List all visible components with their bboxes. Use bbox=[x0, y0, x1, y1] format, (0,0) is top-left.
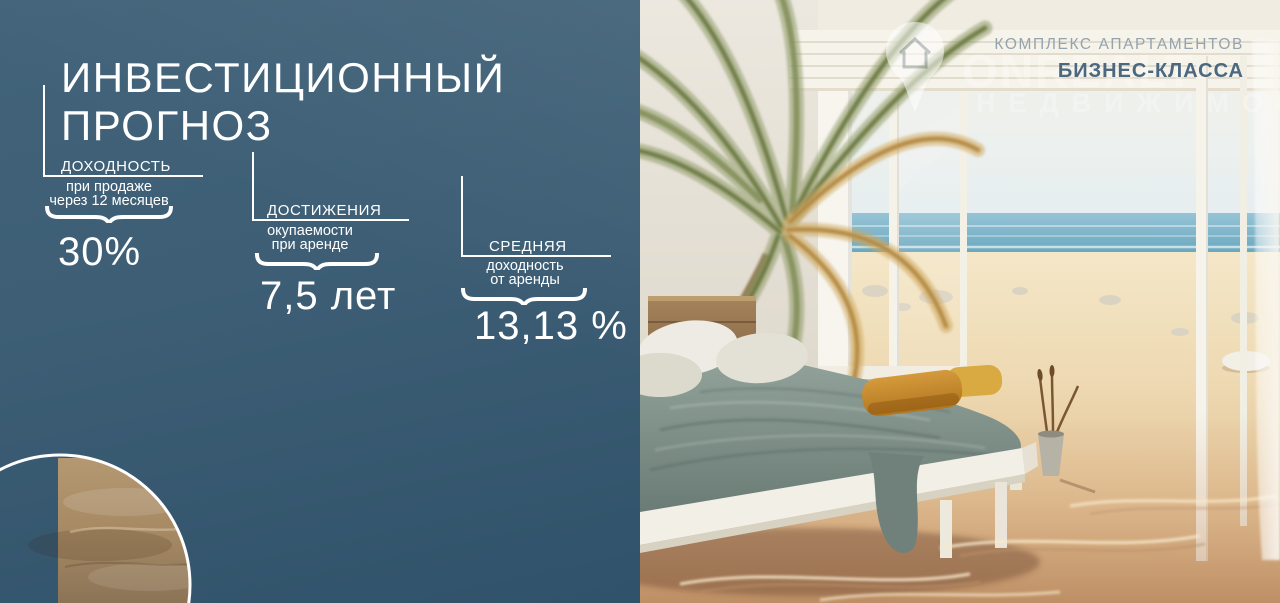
metric3-value: 13,13 % bbox=[474, 304, 628, 349]
underbrace-icon bbox=[460, 288, 588, 305]
complex-type: КОМПЛЕКС АПАРТАМЕНТОВ bbox=[994, 36, 1244, 54]
house-pin-icon bbox=[883, 20, 947, 114]
metric3-sub2: от аренды bbox=[455, 273, 595, 287]
title-line-2: ПРОГНОЗ bbox=[61, 102, 505, 150]
title-line-1: ИНВЕСТИЦИОННЫЙ bbox=[61, 54, 505, 102]
metric3-bracket-hline bbox=[461, 255, 611, 257]
metric1-bracket-hline bbox=[43, 175, 203, 177]
watermark-subtitle: НЕДВИЖИМОСТЬ bbox=[976, 88, 1280, 119]
bed-leg bbox=[940, 500, 952, 558]
metric3-bracket-vline bbox=[461, 176, 463, 257]
left-panel: ИНВЕСТИЦИОННЫЙ ПРОГНОЗ ДОХОДНОСТЬ при пр… bbox=[0, 0, 640, 603]
metric2-sublabel: окупаемости при аренде bbox=[240, 224, 380, 252]
metric1-bracket-vline bbox=[43, 85, 45, 177]
beach-bedroom-photo: ONREALT НЕДВИЖИМОСТЬ КОМПЛЕКС АПАРТАМЕНТ… bbox=[640, 0, 1280, 603]
metric3-sublabel: доходность от аренды bbox=[455, 259, 595, 287]
metric2-bracket-hline bbox=[252, 219, 409, 221]
page-title: ИНВЕСТИЦИОННЫЙ ПРОГНОЗ bbox=[61, 54, 505, 150]
metric2-value: 7,5 лет bbox=[260, 274, 396, 319]
complex-class: БИЗНЕС-КЛАССА bbox=[994, 60, 1244, 83]
metric2-heading: ДОСТИЖЕНИЯ bbox=[267, 202, 381, 219]
investment-forecast-slide: ИНВЕСТИЦИОННЫЙ ПРОГНОЗ ДОХОДНОСТЬ при пр… bbox=[0, 0, 1280, 603]
metric1-sublabel: при продаже через 12 месяцев bbox=[38, 180, 180, 208]
underbrace-icon bbox=[254, 253, 380, 270]
metric2-sub1: окупаемости bbox=[240, 224, 380, 238]
underbrace-icon bbox=[44, 206, 174, 223]
metric1-value: 30% bbox=[58, 230, 141, 275]
metric2-sub2: при аренде bbox=[240, 238, 380, 252]
metric3-heading: СРЕДНЯЯ bbox=[489, 238, 567, 255]
metric1-sub1: при продаже bbox=[38, 180, 180, 194]
bed-leg bbox=[995, 482, 1007, 548]
metric2-bracket-vline bbox=[252, 152, 254, 221]
metric3-sub1: доходность bbox=[455, 259, 595, 273]
sand-texture bbox=[28, 458, 212, 603]
complex-header: КОМПЛЕКС АПАРТАМЕНТОВ БИЗНЕС-КЛАССА bbox=[994, 36, 1244, 83]
corner-circle-decoration bbox=[0, 437, 220, 603]
metric1-heading: ДОХОДНОСТЬ bbox=[61, 158, 171, 175]
